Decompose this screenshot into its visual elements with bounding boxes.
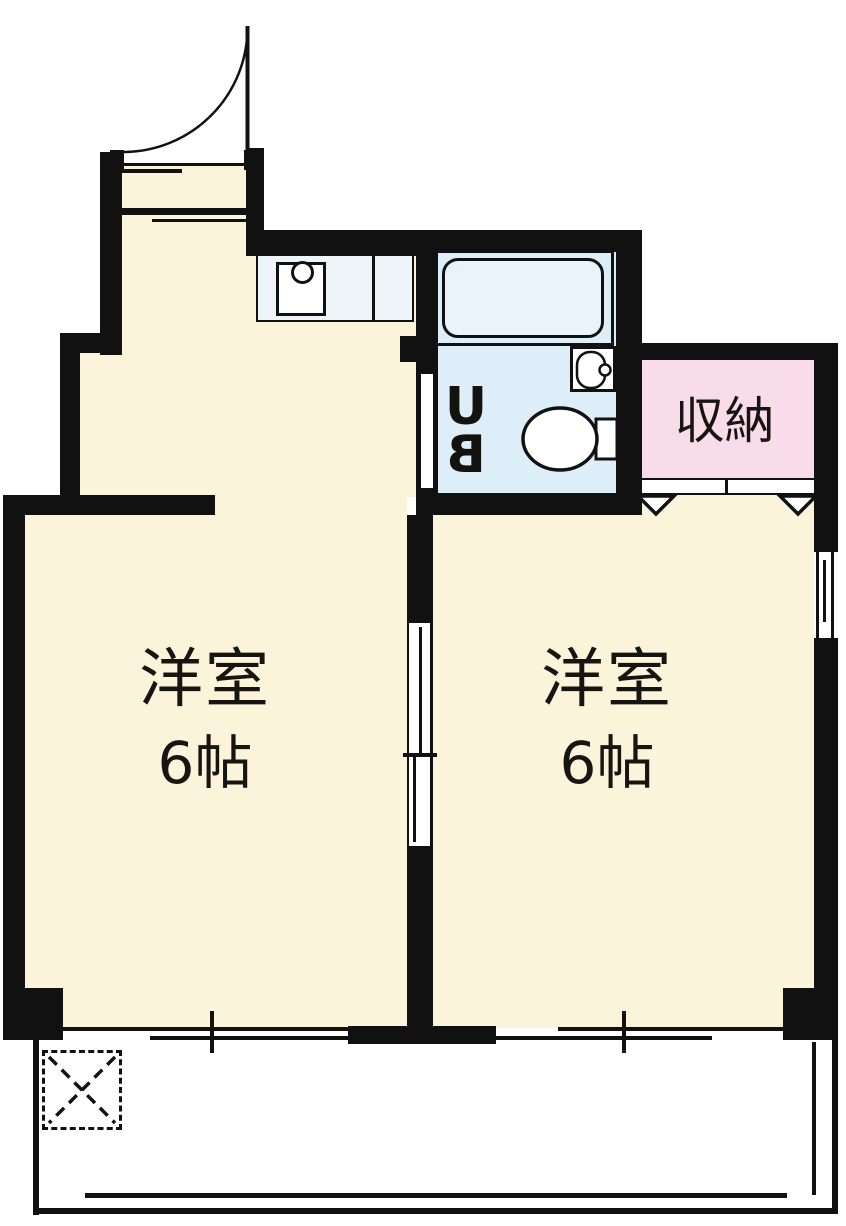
left-wall-jog [60, 333, 122, 353]
right-outer-wall-upper [814, 343, 838, 552]
balcony-left-rail [33, 1040, 39, 1215]
right-room-size: 6帖 [462, 734, 752, 792]
sliding-door-panel-a [419, 627, 422, 757]
hall-room-opening [215, 495, 407, 515]
right-balcony-window-line-b [480, 1036, 712, 1040]
bottom-center-wall [348, 1026, 496, 1044]
left-balcony-window-tick [210, 1011, 214, 1053]
entrance-door-icon [123, 26, 248, 152]
right-room-floor-top-strip [642, 493, 814, 515]
right-window-line-c [831, 552, 834, 638]
kitchen-top-wall [246, 230, 418, 256]
ub-letter-b: B [444, 432, 488, 480]
left-balcony-window-line-b [150, 1036, 380, 1040]
center-wall-lower [407, 846, 433, 1040]
balcony-right-rail [832, 1040, 838, 1214]
entrance-threshold-line [122, 163, 246, 166]
genkan-step-line-2 [152, 219, 252, 222]
bottom-right-corner-wall [783, 988, 838, 1040]
right-room-name: 洋室 [462, 648, 752, 712]
storage-label: 収納 [633, 358, 816, 476]
kitchen-counter-divider [372, 256, 375, 320]
bathtub-icon [442, 258, 604, 338]
left-balcony-window-line-a [62, 1027, 352, 1031]
genkan-step-line [122, 208, 252, 215]
outdoor-unit-space-icon [42, 1050, 122, 1130]
sliding-door-tick [403, 753, 437, 757]
entrance-threshold-line-2 [122, 169, 182, 173]
balcony-inner-right-rail [812, 1042, 816, 1195]
closet-door-divider [725, 478, 728, 495]
hall-floor-lower [80, 351, 416, 497]
right-balcony-window-tick [622, 1011, 626, 1053]
kitchen-faucet-icon [291, 261, 314, 284]
right-room-label: 洋室 6帖 [462, 648, 752, 792]
floor-plan: 洋室 6帖 洋室 6帖 収納 U B [0, 0, 846, 1226]
left-room-size: 6帖 [60, 734, 350, 792]
left-outer-wall [3, 513, 25, 1040]
balcony-inner-bottom-rail [85, 1193, 787, 1198]
bath-bottom-wall [416, 493, 642, 515]
left-room-name: 洋室 [60, 648, 350, 712]
bath-door-icon [419, 372, 435, 490]
right-balcony-window-line-a [558, 1027, 783, 1031]
hall-room-divider-wall [3, 495, 215, 515]
right-outer-wall-lower [814, 638, 838, 1040]
center-wall-upper [407, 515, 433, 623]
right-window-line-b [823, 560, 826, 622]
door-jamb-right [244, 150, 260, 170]
balcony-bottom-rail [33, 1208, 838, 1214]
sliding-door-panel-b [413, 757, 416, 842]
bottom-left-corner-wall [3, 988, 63, 1040]
door-jamb-left [110, 150, 124, 170]
entrance-left-wall [100, 152, 122, 355]
left-room-label: 洋室 6帖 [60, 648, 350, 792]
left-middle-wall [60, 351, 80, 497]
bath-door-jamb [400, 336, 418, 362]
unit-bath-label: U B [444, 384, 488, 480]
right-window-line-a [816, 552, 819, 638]
bath-top-wall [416, 230, 642, 252]
washbasin-box [570, 346, 616, 392]
